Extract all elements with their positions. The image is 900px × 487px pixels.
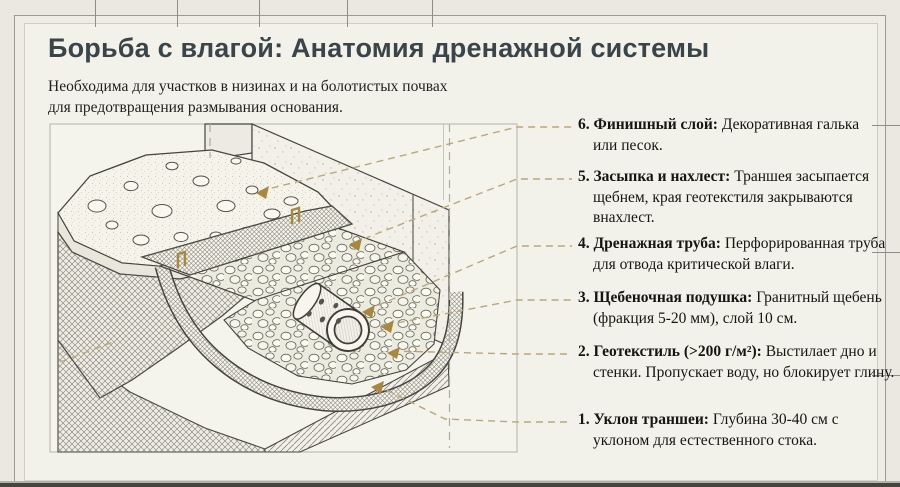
subtitle-line-1: Необходима для участков в низинах и на б…: [48, 76, 568, 97]
legend-item-5: 5. Засыпка и нахлест: Траншея засыпается…: [578, 167, 893, 229]
legend-term-5: 5. Засыпка и нахлест:: [578, 168, 730, 185]
legend-item-4: 4. Дренажная труба: Перфорированная труб…: [578, 234, 893, 275]
page-title: Борьба с влагой: Анатомия дренажной сист…: [48, 33, 868, 64]
legend-term-1: 1. Уклон траншеи:: [578, 411, 709, 428]
subtitle-line-2: для предотвращения размывания основания.: [48, 97, 568, 118]
legend-term-2: 2. Геотекстиль (>200 г/м²):: [578, 343, 762, 360]
legend-term-3: 3. Щебеночная подушка:: [578, 289, 752, 306]
legend-item-2: 2. Геотекстиль (>200 г/м²): Выстилает дн…: [578, 342, 895, 383]
legend-item-3: 3. Щебеночная подушка: Гранитный щебень …: [578, 288, 893, 329]
infographic-sheet: Борьба с влагой: Анатомия дренажной сист…: [0, 0, 900, 487]
legend-term-6: 6. Финишный слой:: [578, 116, 718, 133]
legend-item-1: 1. Уклон траншеи: Глубина 30-40 см с укл…: [578, 410, 893, 451]
legend-item-6: 6. Финишный слой: Декоративная галька ил…: [578, 115, 863, 156]
sheet-bottom-edge: [0, 483, 900, 487]
page-subtitle: Необходима для участков в низинах и на б…: [48, 76, 568, 118]
legend-term-4: 4. Дренажная труба:: [578, 235, 721, 252]
